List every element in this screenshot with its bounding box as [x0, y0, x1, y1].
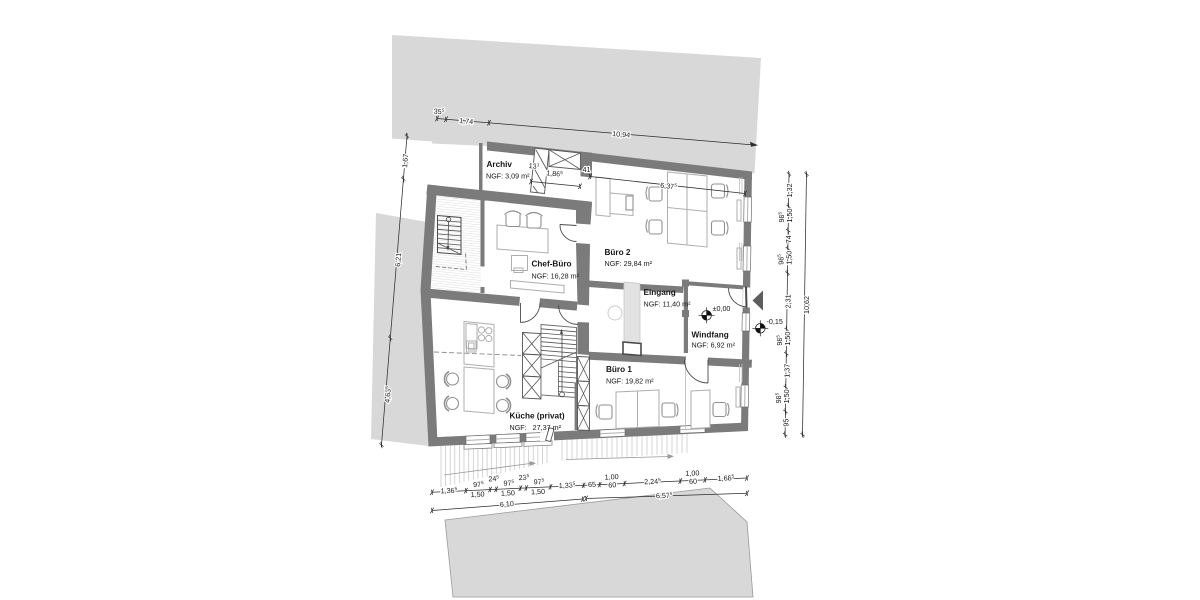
- svg-text:NGF: 16,28 m²: NGF: 16,28 m²: [532, 272, 580, 281]
- svg-text:6,21: 6,21: [393, 252, 403, 267]
- svg-text:1,50: 1,50: [531, 487, 545, 497]
- svg-text:975: 975: [503, 478, 514, 487]
- svg-text:1,50: 1,50: [784, 251, 793, 265]
- svg-text:10,94: 10,94: [612, 129, 631, 139]
- svg-text:235: 235: [518, 473, 529, 482]
- svg-text:10,62: 10,62: [802, 296, 811, 314]
- svg-text:1,50: 1,50: [470, 489, 484, 499]
- svg-text:NGF: 11,40 m²: NGF: 11,40 m²: [644, 300, 692, 309]
- svg-text:1,50: 1,50: [782, 389, 791, 403]
- svg-text:65: 65: [588, 480, 596, 489]
- svg-text:1,32: 1,32: [785, 183, 794, 197]
- svg-text:Chef-Büro: Chef-Büro: [532, 260, 572, 269]
- svg-text:NGF: 29,84 m²: NGF: 29,84 m²: [605, 259, 653, 268]
- svg-text:1,335: 1,335: [559, 480, 576, 490]
- svg-text:6,10: 6,10: [499, 499, 514, 509]
- svg-text:1,67: 1,67: [400, 153, 410, 168]
- svg-text:1,685: 1,685: [717, 473, 734, 483]
- svg-text:2,245: 2,245: [644, 477, 661, 487]
- svg-text:NGF: 3,09 m²: NGF: 3,09 m²: [486, 172, 530, 181]
- svg-text:Küche (privat): Küche (privat): [510, 412, 565, 421]
- svg-text:Eingang: Eingang: [644, 288, 676, 297]
- svg-text:975: 975: [473, 480, 484, 489]
- svg-text:1,365: 1,365: [440, 486, 457, 496]
- svg-text:Büro 2: Büro 2: [605, 248, 631, 257]
- svg-text:Büro 1: Büro 1: [606, 365, 632, 374]
- svg-text:245: 245: [488, 474, 499, 483]
- svg-text:NGF: 27,37 m²: NGF: 27,37 m²: [510, 423, 562, 432]
- svg-text:Archiv: Archiv: [487, 160, 513, 169]
- svg-text:2,31: 2,31: [783, 294, 792, 308]
- svg-text:60: 60: [608, 480, 616, 489]
- svg-text:975: 975: [533, 477, 544, 486]
- svg-text:-0,15: -0,15: [767, 317, 783, 326]
- svg-text:±0,00: ±0,00: [713, 304, 731, 313]
- svg-text:NGF: 6,92 m²: NGF: 6,92 m²: [692, 341, 736, 350]
- svg-text:1,50: 1,50: [501, 488, 515, 498]
- svg-text:74: 74: [784, 235, 793, 243]
- svg-text:1,74: 1,74: [459, 116, 474, 126]
- svg-text:60: 60: [689, 477, 697, 486]
- svg-text:1,50: 1,50: [785, 209, 794, 223]
- svg-text:1,37: 1,37: [782, 364, 791, 378]
- svg-text:41: 41: [583, 165, 591, 174]
- svg-text:1,50: 1,50: [783, 332, 792, 346]
- svg-text:NGF: 19,82 m²: NGF: 19,82 m²: [606, 377, 654, 386]
- svg-text:1,865: 1,865: [546, 168, 564, 179]
- svg-text:Windfang: Windfang: [692, 331, 729, 340]
- svg-text:95: 95: [782, 419, 791, 427]
